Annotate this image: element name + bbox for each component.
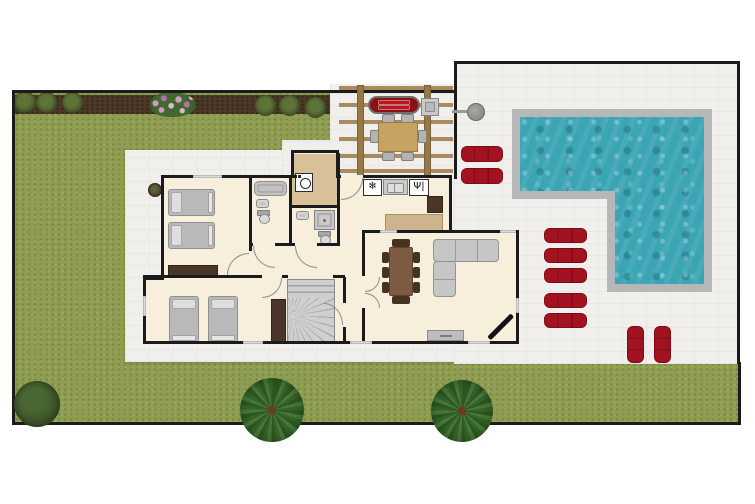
sun-lounger: [654, 326, 671, 363]
bush-icon: [279, 95, 300, 116]
dining-chair: [413, 267, 420, 278]
bush-icon: [36, 92, 57, 113]
window: [500, 230, 516, 233]
shower-room-sink-icon: [296, 211, 309, 220]
house-floor: [145, 278, 165, 343]
sun-lounger: [627, 326, 644, 363]
bed-footboard: [208, 192, 213, 213]
outdoor-chair: [418, 130, 427, 143]
dining-chair: [392, 296, 410, 304]
sun-lounger: [544, 268, 587, 283]
palm-tree-icon: [240, 378, 304, 442]
potted-plant-icon: [148, 183, 162, 197]
single-bed: [208, 296, 238, 343]
wall: [291, 150, 294, 178]
single-bed: [168, 222, 215, 249]
window: [468, 341, 490, 344]
cooktop-glyph: Ψ|: [413, 181, 424, 192]
wall: [291, 150, 339, 153]
single-bed: [169, 296, 199, 343]
dining-chair: [382, 282, 389, 293]
wall: [362, 230, 452, 233]
corner-sofa: [433, 239, 499, 262]
cooktop-icon: Ψ|: [409, 179, 429, 196]
kitchen-counter: [385, 214, 443, 231]
dining-table: [389, 247, 413, 296]
sun-lounger: [544, 248, 587, 263]
corner-sofa: [433, 261, 456, 297]
single-bed: [168, 189, 215, 216]
wall: [449, 175, 452, 233]
bed-footboard: [208, 225, 213, 246]
sun-lounger: [461, 168, 503, 184]
wall: [337, 153, 340, 246]
sun-lounger: [544, 228, 587, 243]
pillow: [172, 299, 196, 309]
dining-chair: [413, 282, 420, 293]
stair-treads: [288, 280, 334, 298]
window: [193, 175, 222, 178]
bush-icon: [62, 92, 83, 113]
lot-border-right: [738, 362, 741, 425]
tv-stand: [427, 330, 464, 341]
door-gap: [249, 251, 252, 275]
pergola-post: [357, 85, 364, 176]
bbq-grill-icon: [368, 96, 420, 114]
pillow: [211, 299, 235, 309]
wall: [161, 175, 164, 280]
outdoor-chair: [382, 152, 395, 161]
patio-wall-left: [454, 61, 457, 179]
outdoor-shower-icon: [467, 103, 485, 121]
wall: [291, 205, 339, 208]
dining-chair: [382, 252, 389, 263]
sun-lounger: [544, 313, 587, 328]
shrub-icon: [14, 381, 60, 427]
bathtub-icon: [254, 181, 287, 196]
pillow: [171, 192, 182, 213]
dining-chair: [413, 252, 420, 263]
outdoor-dining-table: [378, 122, 418, 152]
patio-wall-right: [737, 61, 740, 364]
dining-chair: [382, 267, 389, 278]
washing-machine-icon: [295, 173, 313, 192]
pillow: [171, 225, 182, 246]
sun-lounger: [461, 146, 503, 162]
lot-border-left: [12, 90, 15, 425]
flower-patch-icon: [150, 92, 196, 117]
kitchen-sink-icon: [383, 179, 408, 195]
door-gap: [343, 303, 346, 327]
bathroom-sink-icon: [256, 199, 269, 208]
side-table-icon: [421, 98, 439, 116]
sun-lounger: [544, 293, 587, 308]
bush-icon: [255, 95, 276, 116]
window: [243, 341, 263, 344]
window: [516, 298, 519, 313]
window: [350, 341, 372, 344]
window: [143, 296, 146, 316]
fridge-glyph: ❄: [368, 181, 376, 192]
stairs-opening: [288, 275, 333, 278]
outdoor-chair: [401, 152, 414, 161]
tall-cabinet: [427, 196, 443, 213]
patio-wall-top: [454, 61, 740, 64]
toilet-icon: [257, 210, 270, 223]
fridge-freezer-icon: ❄: [363, 179, 382, 196]
wall: [289, 178, 292, 246]
wall: [143, 341, 519, 344]
dining-chair: [392, 239, 410, 247]
bush-icon: [14, 91, 36, 113]
lot-border-bottom: [12, 422, 741, 425]
floor-plan-canvas: ❄ Ψ|: [0, 0, 755, 504]
wall: [161, 175, 297, 178]
lot-border-top: [12, 90, 456, 93]
bush-icon: [305, 97, 326, 118]
window: [380, 230, 397, 233]
palm-tree-icon: [431, 380, 493, 442]
wardrobe: [271, 299, 286, 343]
shower-icon: [314, 210, 335, 230]
wall: [516, 230, 519, 344]
